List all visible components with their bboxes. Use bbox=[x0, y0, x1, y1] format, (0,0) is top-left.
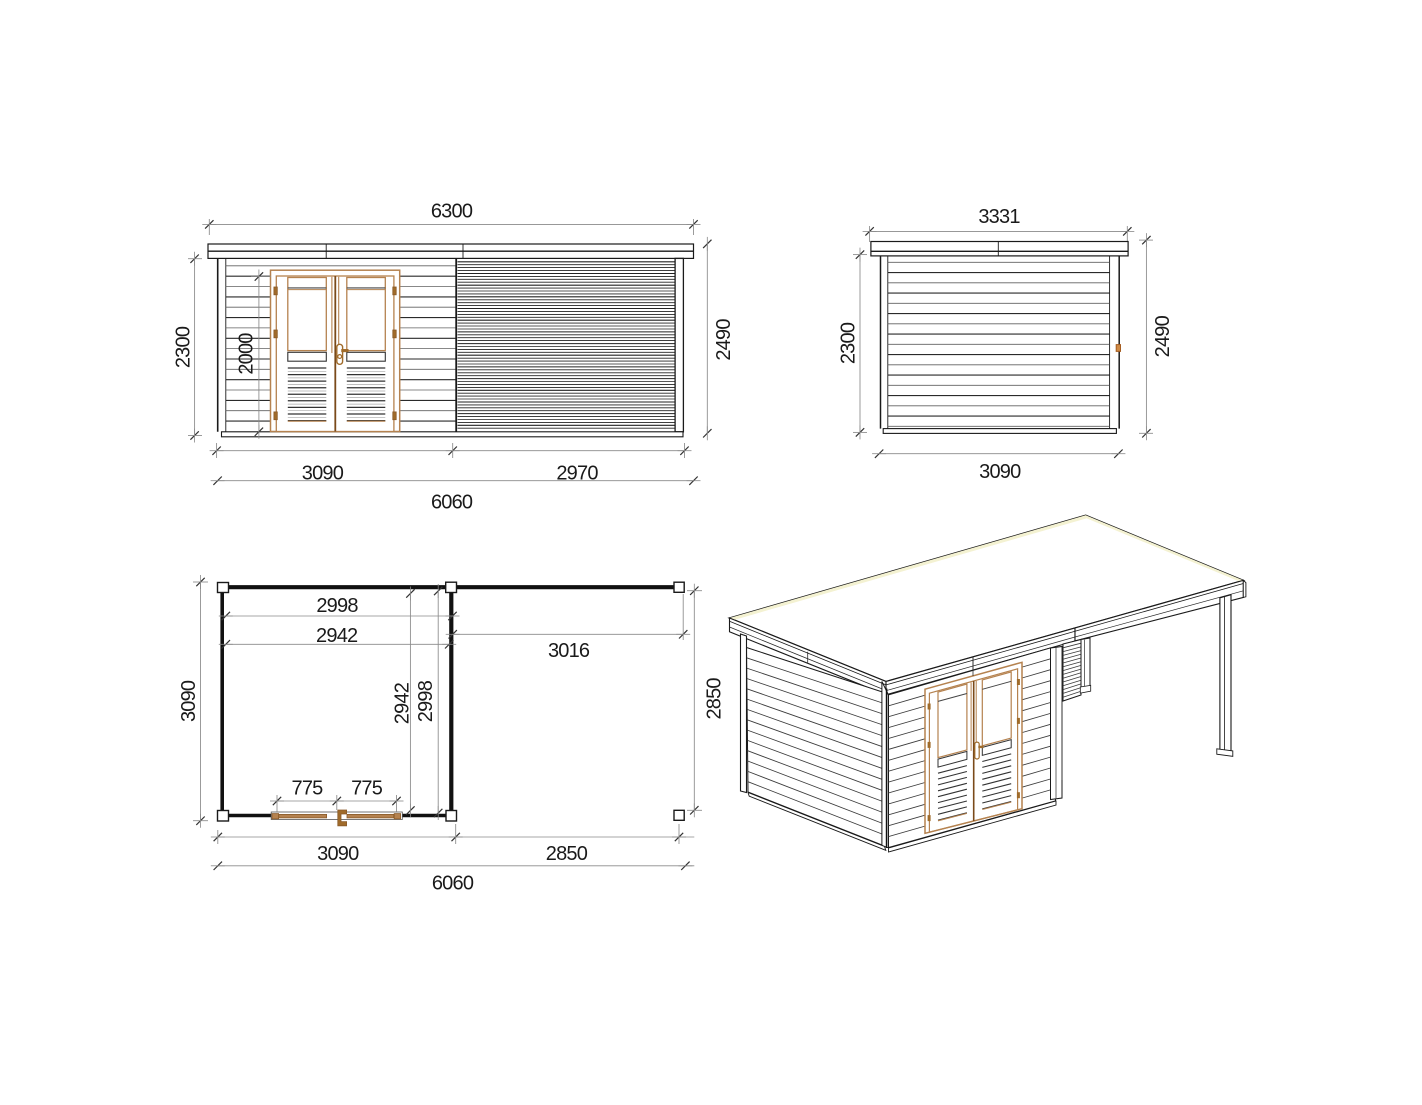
svg-text:2970: 2970 bbox=[556, 463, 598, 485]
svg-text:2490: 2490 bbox=[713, 319, 735, 361]
svg-text:3090: 3090 bbox=[317, 843, 359, 865]
svg-text:6060: 6060 bbox=[431, 492, 473, 514]
svg-text:2850: 2850 bbox=[704, 678, 726, 720]
svg-text:3090: 3090 bbox=[178, 680, 200, 722]
svg-text:6060: 6060 bbox=[432, 873, 474, 895]
svg-text:3090: 3090 bbox=[979, 461, 1021, 483]
svg-text:3016: 3016 bbox=[548, 640, 590, 662]
svg-text:2998: 2998 bbox=[316, 595, 358, 617]
svg-text:2850: 2850 bbox=[546, 843, 588, 865]
svg-text:2300: 2300 bbox=[173, 326, 195, 368]
svg-text:2998: 2998 bbox=[415, 680, 437, 722]
svg-text:6300: 6300 bbox=[431, 201, 473, 223]
svg-text:3331: 3331 bbox=[978, 206, 1020, 228]
svg-text:2000: 2000 bbox=[235, 333, 257, 375]
svg-text:3090: 3090 bbox=[302, 463, 344, 485]
svg-text:775: 775 bbox=[351, 778, 383, 800]
svg-text:775: 775 bbox=[292, 778, 324, 800]
svg-text:2942: 2942 bbox=[316, 625, 358, 647]
svg-text:2490: 2490 bbox=[1152, 315, 1174, 357]
svg-text:2300: 2300 bbox=[838, 322, 860, 364]
svg-text:2942: 2942 bbox=[391, 682, 413, 724]
